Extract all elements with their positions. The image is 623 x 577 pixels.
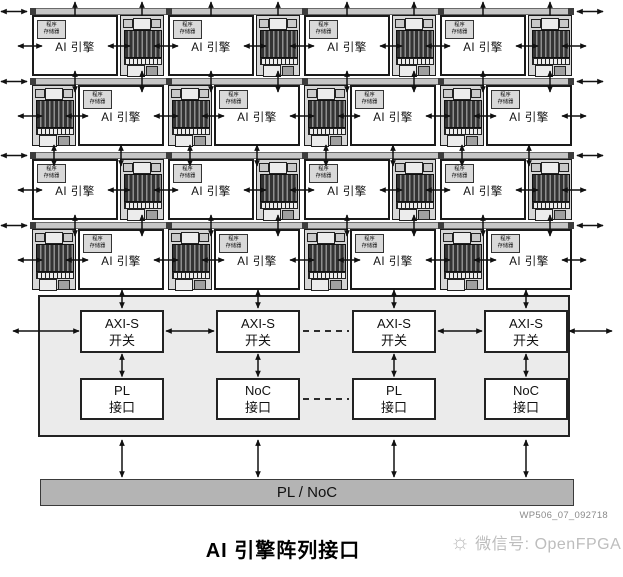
memory-port-block [181,88,199,100]
memory-port-block [58,136,70,146]
memory-port-block [287,19,297,28]
ai-engine-label: AI 引擎 [373,253,413,269]
memory-port-block [554,210,566,220]
memory-array-icon [532,174,570,202]
ai-engine-box: AI 引擎程序存储器 [214,229,300,290]
program-memory-label-line: 存储器 [221,99,247,106]
ai-engine-box: AI 引擎程序存储器 [168,159,254,220]
memory-port-block [45,232,63,244]
program-memory-label: 程序存储器 [37,164,66,183]
program-memory-label-line: 程序 [311,166,337,173]
memory-io-dots [444,272,482,279]
program-memory-label-line: 程序 [221,92,247,99]
memory-port-block [63,233,73,242]
memory-port-block [418,210,430,220]
memory-port-block [63,89,73,98]
memory-array-icon [36,244,74,272]
program-memory-label-line: 存储器 [39,29,65,36]
memory-port-block [133,162,151,174]
memory-array-icon [260,174,298,202]
memory-port-block [418,66,430,76]
ai-engine-label: AI 引擎 [191,183,231,199]
memory-array-icon [36,100,74,128]
memory-port-block [447,135,465,147]
memory-io-dots [532,202,570,209]
memory-port-block [35,89,45,98]
program-memory-label-line: 存储器 [175,173,201,180]
memory-io-dots [124,58,162,65]
program-memory-label-line: 存储器 [447,29,473,36]
program-memory-label-line: 程序 [447,166,473,173]
memory-module [392,15,436,76]
memory-port-block [127,65,145,77]
program-memory-label: 程序存储器 [173,20,202,39]
memory-module [440,85,484,146]
axi-stream-switch-box-label: 开关 [109,332,135,349]
axi-stream-switch-box-label: AXI-S [241,315,275,332]
memory-port-block [151,163,161,172]
memory-port-block [423,163,433,172]
axi-stream-switch-box: AXI-S开关 [80,310,164,353]
axi-stream-switch-box-label: 开关 [381,332,407,349]
memory-port-block [39,279,57,291]
ai-engine-tile: AI 引擎程序存储器 [166,152,302,222]
program-memory-label-line: 程序 [357,236,383,243]
memory-module [168,229,212,290]
memory-module [440,229,484,290]
program-memory-label: 程序存储器 [83,90,112,109]
wechat-watermark: ☼ 微信号: OpenFPGA [450,530,621,554]
program-memory-label: 程序存储器 [83,234,112,253]
axi-stream-switch-box-label: 开关 [513,332,539,349]
program-memory-label: 程序存储器 [309,20,338,39]
memory-module [120,159,164,220]
program-memory-label: 程序存储器 [445,20,474,39]
pl-interface-box-label: 接口 [381,399,407,416]
memory-port-block [175,135,193,147]
program-memory-label-line: 存储器 [447,173,473,180]
ai-engine-label: AI 引擎 [55,183,95,199]
ai-engine-label: AI 引擎 [463,39,503,55]
program-memory-label: 程序存储器 [219,234,248,253]
ai-engine-box: AI 引擎程序存储器 [32,15,118,76]
ai-engine-box: AI 引擎程序存储器 [486,85,572,146]
program-memory-label-line: 存储器 [493,243,519,250]
memory-io-dots [172,128,210,135]
ai-engine-box: AI 引擎程序存储器 [440,15,526,76]
memory-port-block [263,209,281,221]
memory-array-icon [396,174,434,202]
memory-io-dots [396,202,434,209]
program-memory-label-line: 存储器 [493,99,519,106]
program-memory-label-line: 程序 [85,236,111,243]
noc-interface-box-label: 接口 [245,399,271,416]
pl-interface-box: PL接口 [352,378,436,420]
ai-engine-label: AI 引擎 [327,39,367,55]
ai-engine-tile: AI 引擎程序存储器 [166,222,302,292]
ai-engine-tile: AI 引擎程序存储器 [302,152,438,222]
memory-port-block [171,89,181,98]
program-memory-label: 程序存储器 [37,20,66,39]
figure-caption: AI 引擎阵列接口 [175,534,391,563]
memory-array-icon [444,100,482,128]
noc-interface-box-label: NoC [513,382,539,399]
program-memory-label-line: 程序 [493,92,519,99]
memory-port-block [405,18,423,30]
memory-port-block [123,19,133,28]
memory-io-dots [396,58,434,65]
memory-io-dots [36,272,74,279]
program-memory-label-line: 存储器 [311,173,337,180]
memory-port-block [453,88,471,100]
memory-port-block [447,279,465,291]
ai-engine-box: AI 引擎程序存储器 [304,159,390,220]
memory-port-block [541,18,559,30]
memory-port-block [151,19,161,28]
axi-stream-switch-box: AXI-S开关 [484,310,568,353]
memory-port-block [199,89,209,98]
ai-engine-tile: AI 引擎程序存储器 [438,8,574,78]
memory-array-icon [172,244,210,272]
memory-io-dots [124,202,162,209]
program-memory-label: 程序存储器 [491,234,520,253]
memory-io-dots [172,272,210,279]
ai-engine-box: AI 引擎程序存储器 [32,159,118,220]
memory-port-block [554,66,566,76]
program-memory-label-line: 程序 [493,236,519,243]
memory-module [32,85,76,146]
ai-engine-tile: AI 引擎程序存储器 [302,222,438,292]
memory-module [304,85,348,146]
ai-engine-tile: AI 引擎程序存储器 [438,152,574,222]
ai-engine-box: AI 引擎程序存储器 [214,85,300,146]
ai-engine-array-diagram: AI 引擎程序存储器AI 引擎程序存储器AI 引擎程序存储器AI 引擎程序存储器… [0,0,623,577]
memory-array-icon [260,30,298,58]
program-memory-label: 程序存储器 [355,90,384,109]
memory-port-block [330,136,342,146]
noc-interface-box-label: 接口 [513,399,539,416]
figure-code: WP506_07_092718 [520,510,609,521]
memory-io-dots [260,202,298,209]
ai-engine-label: AI 引擎 [463,183,503,199]
memory-array-icon [444,244,482,272]
program-memory-label: 程序存储器 [491,90,520,109]
program-memory-label-line: 存储器 [221,243,247,250]
memory-port-block [259,19,269,28]
ai-engine-box: AI 引擎程序存储器 [350,85,436,146]
memory-io-dots [444,128,482,135]
memory-io-dots [260,58,298,65]
program-memory-label-line: 程序 [39,166,65,173]
memory-port-block [307,233,317,242]
memory-port-block [535,209,553,221]
memory-port-block [171,233,181,242]
memory-port-block [317,232,335,244]
noc-interface-box: NoC接口 [484,378,568,420]
memory-array-icon [308,100,346,128]
program-memory-label-line: 程序 [175,166,201,173]
memory-port-block [399,209,417,221]
memory-io-dots [532,58,570,65]
program-memory-label-line: 程序 [221,236,247,243]
ai-engine-label: AI 引擎 [327,183,367,199]
program-memory-label-line: 存储器 [175,29,201,36]
memory-port-block [123,163,133,172]
memory-module [528,15,572,76]
pl-noc-bar: PL / NoC [40,479,574,506]
memory-port-block [443,89,453,98]
ai-engine-label: AI 引擎 [237,109,277,125]
program-memory-label: 程序存储器 [173,164,202,183]
memory-port-block [146,66,158,76]
axi-stream-switch-box: AXI-S开关 [352,310,436,353]
ai-engine-label: AI 引擎 [509,253,549,269]
memory-port-block [269,18,287,30]
ai-engine-box: AI 引擎程序存储器 [78,85,164,146]
program-memory-label-line: 存储器 [39,173,65,180]
program-memory-label-line: 存储器 [85,243,111,250]
ai-engine-tile: AI 引擎程序存储器 [302,78,438,148]
memory-port-block [559,19,569,28]
ai-engine-tile-array: AI 引擎程序存储器AI 引擎程序存储器AI 引擎程序存储器AI 引擎程序存储器… [0,0,623,292]
memory-module [256,15,300,76]
ai-engine-box: AI 引擎程序存储器 [168,15,254,76]
memory-port-block [269,162,287,174]
memory-module [528,159,572,220]
pl-interface-box-label: 接口 [109,399,135,416]
memory-port-block [317,88,335,100]
ai-engine-tile: AI 引擎程序存储器 [302,8,438,78]
memory-port-block [194,280,206,290]
ai-engine-label: AI 引擎 [101,253,141,269]
memory-io-dots [36,128,74,135]
axi-stream-switch-box-label: 开关 [245,332,271,349]
axi-stream-switch-box-label: AXI-S [105,315,139,332]
ai-engine-box: AI 引擎程序存储器 [78,229,164,290]
memory-array-icon [172,100,210,128]
ai-engine-tile: AI 引擎程序存储器 [30,152,166,222]
memory-port-block [45,88,63,100]
memory-port-block [335,89,345,98]
axi-stream-switch-box: AXI-S开关 [216,310,300,353]
memory-port-block [335,233,345,242]
ai-engine-tile: AI 引擎程序存储器 [30,8,166,78]
memory-port-block [58,280,70,290]
memory-port-block [535,65,553,77]
memory-module [168,85,212,146]
memory-port-block [330,280,342,290]
pl-noc-bar-label: PL / NoC [277,484,337,501]
program-memory-label-line: 程序 [39,22,65,29]
memory-port-block [287,163,297,172]
pl-interface-box-label: PL [386,382,402,399]
memory-array-icon [308,244,346,272]
ai-engine-tile: AI 引擎程序存储器 [438,78,574,148]
memory-port-block [307,89,317,98]
memory-port-block [453,232,471,244]
memory-port-block [39,135,57,147]
program-memory-label: 程序存储器 [355,234,384,253]
memory-port-block [395,19,405,28]
memory-io-dots [308,128,346,135]
ai-engine-box: AI 引擎程序存储器 [350,229,436,290]
program-memory-label-line: 程序 [447,22,473,29]
ai-engine-tile: AI 引擎程序存储器 [166,78,302,148]
program-memory-label-line: 程序 [85,92,111,99]
memory-port-block [559,163,569,172]
ai-engine-box: AI 引擎程序存储器 [304,15,390,76]
ai-engine-tile: AI 引擎程序存储器 [166,8,302,78]
memory-port-block [395,163,405,172]
memory-array-icon [532,30,570,58]
ai-engine-label: AI 引擎 [55,39,95,55]
memory-module [256,159,300,220]
axi-stream-switch-box-label: AXI-S [509,315,543,332]
program-memory-label-line: 程序 [175,22,201,29]
program-memory-label-line: 存储器 [357,243,383,250]
memory-module [304,229,348,290]
memory-port-block [399,65,417,77]
memory-port-block [175,279,193,291]
memory-port-block [181,232,199,244]
ai-engine-label: AI 引擎 [373,109,413,125]
memory-array-icon [396,30,434,58]
pl-interface-box-label: PL [114,382,130,399]
memory-module [32,229,76,290]
memory-module [120,15,164,76]
ai-engine-box: AI 引擎程序存储器 [486,229,572,290]
noc-interface-box-label: NoC [245,382,271,399]
memory-module [392,159,436,220]
program-memory-label-line: 存储器 [357,99,383,106]
ai-engine-tile: AI 引擎程序存储器 [30,78,166,148]
memory-port-block [146,210,158,220]
memory-port-block [423,19,433,28]
program-memory-label-line: 存储器 [311,29,337,36]
memory-port-block [466,136,478,146]
ai-engine-tile: AI 引擎程序存储器 [30,222,166,292]
memory-port-block [466,280,478,290]
watermark-text: 微信号: OpenFPGA [475,530,621,554]
ai-engine-label: AI 引擎 [237,253,277,269]
ai-engine-tile: AI 引擎程序存储器 [438,222,574,292]
noc-interface-box: NoC接口 [216,378,300,420]
memory-port-block [133,18,151,30]
memory-port-block [127,209,145,221]
memory-port-block [443,233,453,242]
memory-port-block [541,162,559,174]
ai-engine-label: AI 引擎 [191,39,231,55]
program-memory-label-line: 程序 [357,92,383,99]
program-memory-label: 程序存储器 [219,90,248,109]
memory-port-block [531,163,541,172]
memory-port-block [35,233,45,242]
memory-array-icon [124,174,162,202]
pl-interface-box: PL接口 [80,378,164,420]
program-memory-label: 程序存储器 [445,164,474,183]
program-memory-label-line: 存储器 [85,99,111,106]
memory-port-block [259,163,269,172]
sun-icon: ☼ [450,531,470,553]
ai-engine-label: AI 引擎 [509,109,549,125]
memory-port-block [405,162,423,174]
memory-port-block [282,210,294,220]
memory-port-block [311,279,329,291]
program-memory-label: 程序存储器 [309,164,338,183]
memory-port-block [471,233,481,242]
memory-port-block [471,89,481,98]
ai-engine-label: AI 引擎 [101,109,141,125]
axi-stream-switch-box-label: AXI-S [377,315,411,332]
memory-port-block [263,65,281,77]
memory-array-icon [124,30,162,58]
memory-port-block [199,233,209,242]
ai-engine-box: AI 引擎程序存储器 [440,159,526,220]
memory-io-dots [308,272,346,279]
memory-port-block [531,19,541,28]
memory-port-block [282,66,294,76]
program-memory-label-line: 程序 [311,22,337,29]
memory-port-block [311,135,329,147]
memory-port-block [194,136,206,146]
